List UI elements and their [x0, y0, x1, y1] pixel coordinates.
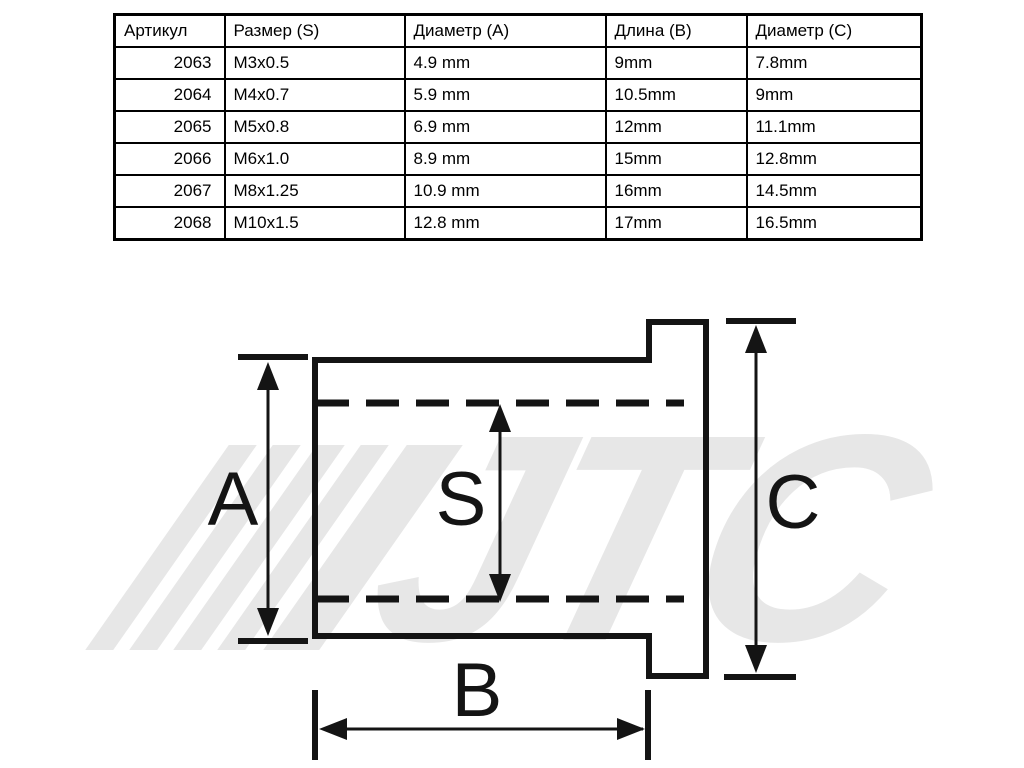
dim-a-arrow-up-icon: [257, 362, 279, 390]
page: Артикул Размер (S) Диаметр (A) Длина (B)…: [0, 0, 1024, 768]
dim-label-a: A: [208, 462, 259, 538]
dim-a-arrow-down-icon: [257, 608, 279, 636]
dim-b-arrow-right-icon: [617, 718, 645, 740]
dim-c-arrow-up-icon: [745, 325, 767, 353]
dim-label-b: B: [452, 653, 503, 729]
dim-label-c: C: [766, 465, 821, 541]
dim-label-s: S: [436, 462, 487, 538]
dim-s-arrow-up-icon: [489, 404, 511, 432]
dim-c-arrow-down-icon: [745, 645, 767, 673]
rivet-nut-drawing: [0, 0, 1024, 768]
dim-b-arrow-left-icon: [319, 718, 347, 740]
part-outline: [315, 322, 706, 676]
